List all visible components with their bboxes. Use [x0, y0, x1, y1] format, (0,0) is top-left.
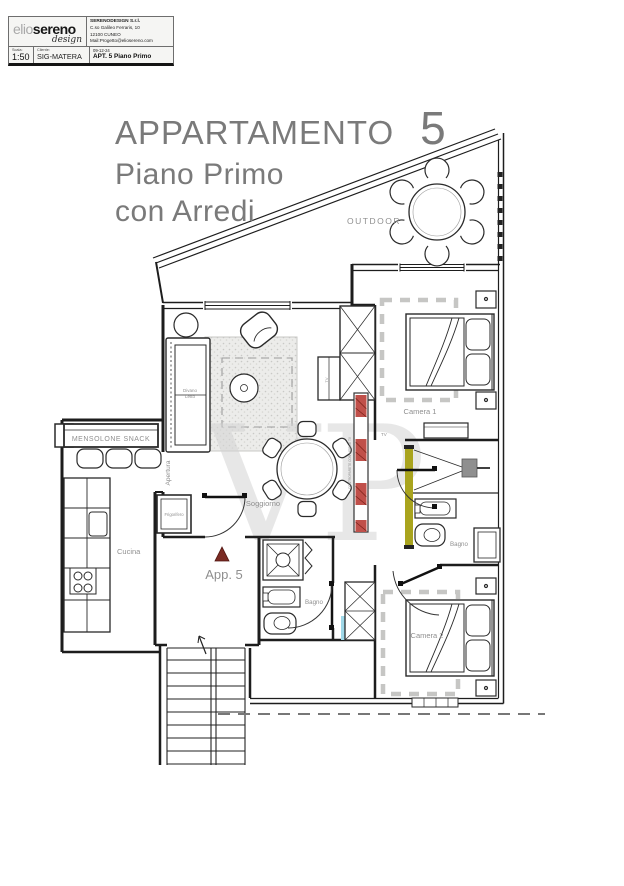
snack-counter	[55, 424, 161, 468]
bedroom2	[383, 578, 496, 707]
logo: eliosereno design	[9, 17, 87, 46]
client-cell: Cliente: SIG-MATERA	[34, 47, 90, 63]
radiator-camera2	[412, 698, 458, 707]
logo-elio: elio	[13, 21, 33, 37]
windows	[203, 262, 466, 311]
client-value: SIG-MATERA	[37, 52, 86, 61]
drawing-heading: APPARTAMENTO 5 Piano Primo con Arredi	[115, 101, 446, 229]
wardrobe-camera1	[340, 306, 375, 400]
company-mail: Mail:Progetto@eliosereno.com	[90, 38, 170, 44]
red-hatched-wall	[354, 393, 368, 532]
sink1	[263, 587, 300, 607]
stairs	[167, 636, 245, 765]
bed-camera1	[406, 314, 494, 390]
heading-title: APPARTAMENTO	[115, 114, 394, 152]
title-block-bottom: Scala: 1:50 Cliente: SIG-MATERA 09-12-24…	[9, 47, 173, 63]
label-mensolone-snack: MENSOLONE SNACK	[72, 436, 150, 443]
title-block-top: eliosereno design SERENODESIGN S.r.l. C.…	[9, 17, 173, 47]
heading-line2: Piano Primo	[115, 158, 446, 192]
label-divano-2: Letto	[185, 394, 196, 399]
label-bagno1: Bagno	[305, 599, 323, 606]
label-app5: App. 5	[205, 567, 243, 582]
shower-head-icon	[462, 459, 477, 477]
label-soggiorno: Soggiorno	[246, 499, 280, 508]
dining-table	[277, 439, 337, 499]
project-cell: 09-12-24 APT. 5 Piano Primo	[90, 47, 173, 63]
tv-cabinet	[318, 357, 340, 400]
project-name: APT. 5 Piano Primo	[93, 53, 170, 60]
company-info: SERENODESIGN S.r.l. C.so Galileo Ferrari…	[87, 17, 173, 46]
label-frigorifero: Frigorifero	[164, 512, 184, 517]
kitchen-counter	[64, 478, 110, 632]
side-table	[174, 313, 198, 337]
label-divano-1: Divano	[183, 388, 198, 393]
heading-line3: con Arredi	[115, 195, 446, 229]
toilet1	[264, 613, 296, 634]
coffee-table	[230, 374, 258, 402]
label-bagno2: Bagno	[450, 541, 468, 548]
label-camera1: Camera 1	[404, 407, 437, 416]
label-camera2: Camera 2	[411, 631, 444, 640]
label-tv-corridor: TV	[381, 432, 387, 437]
label-tv-cabinet: TV	[324, 377, 329, 382]
toilet2	[415, 524, 445, 546]
floor-plan-page: eliosereno design SERENODESIGN S.r.l. C.…	[0, 0, 624, 886]
kitchen-sink	[89, 512, 107, 536]
scale-value: 1:50	[12, 52, 30, 62]
desk-camera1	[424, 423, 468, 438]
title-block: eliosereno design SERENODESIGN S.r.l. C.…	[8, 16, 174, 66]
cooktop	[70, 568, 96, 594]
label-apertura: Apertura	[165, 460, 172, 485]
shower-tray	[474, 528, 500, 562]
stools	[77, 449, 161, 468]
wardrobe-corridor	[345, 582, 375, 640]
olive-wall-strip	[404, 445, 414, 549]
scale-cell: Scala: 1:50	[9, 47, 34, 63]
label-cucina: Cucina	[117, 547, 141, 556]
label-wall-note: CONTROPARETE CON MOBILE TV	[348, 436, 352, 489]
heading-number: 5	[420, 101, 446, 155]
